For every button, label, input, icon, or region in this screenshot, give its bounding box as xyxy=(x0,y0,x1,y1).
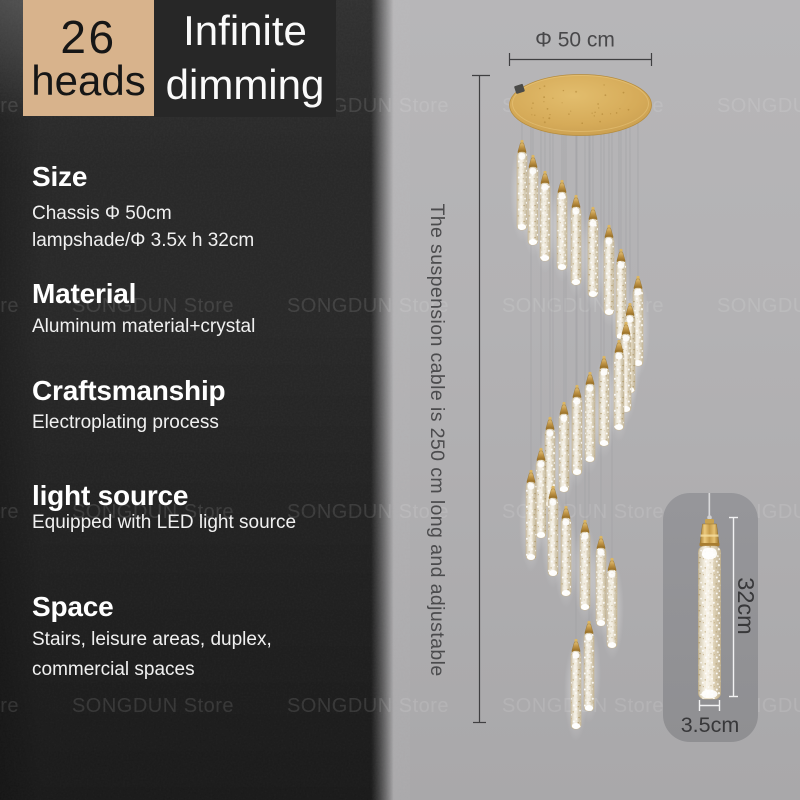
svg-text:The suspension cable is 250 cm: The suspension cable is 250 cm long and … xyxy=(426,203,448,676)
svg-text:Φ 50 cm: Φ 50 cm xyxy=(535,29,615,52)
svg-text:32cm: 32cm xyxy=(733,577,759,634)
svg-text:3.5cm: 3.5cm xyxy=(681,713,740,737)
